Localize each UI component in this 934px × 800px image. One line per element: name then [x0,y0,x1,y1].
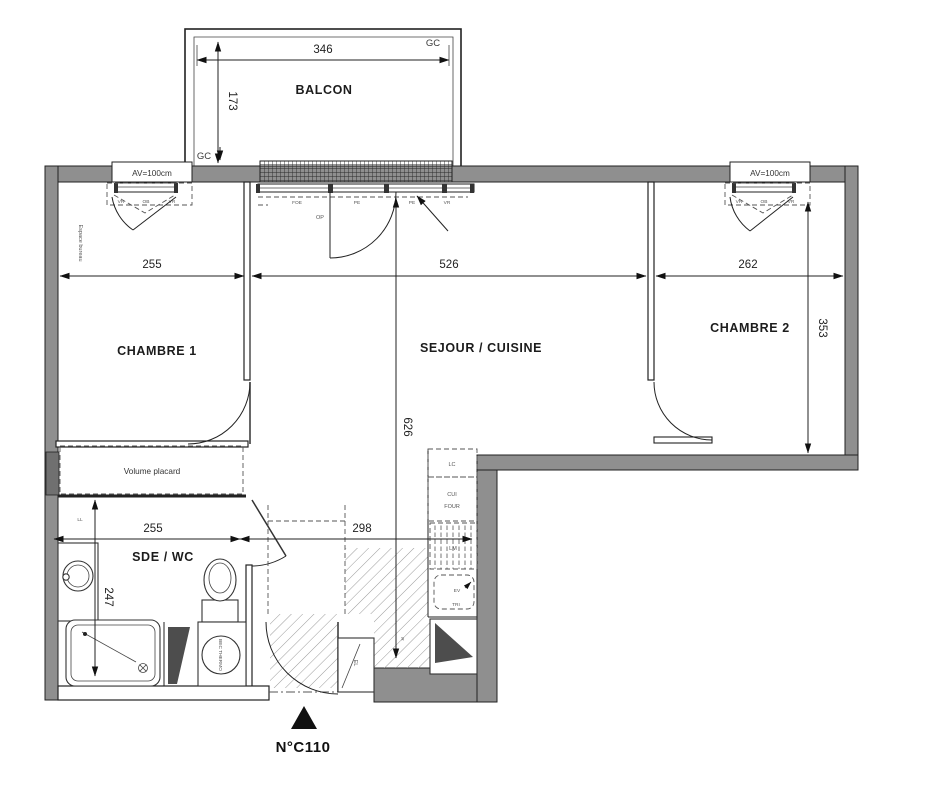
tag-bay-foe: FOE [292,200,302,206]
tag-bay-pe1: PE [354,200,360,206]
op-label: OP [316,215,324,221]
dim-sde-depth: 247 [102,587,114,606]
tag-bay-pe2: PE [409,200,415,206]
entry-right-wall [477,470,497,702]
tag-window-right-vr1: VR [736,199,743,205]
espace-bureau-label: Espace bureau [77,225,83,262]
tag-window-left-ob: OB [143,199,150,205]
wall-sde-bottom [58,686,269,700]
dim-sejour-depth: 626 [401,417,413,436]
room-label-sejour: SEJOUR / CUISINE [420,341,542,355]
kitchen-ev-label: EV [454,588,461,594]
dim-balcon-width: 346 [313,44,332,56]
dim-chambre2-depth: 353 [816,318,828,337]
dim-entry-width: 298 [352,523,371,535]
shower [66,620,160,686]
kitchen-lc-label: LC [448,462,455,468]
duct-block [46,452,59,495]
dim-sde-width: 255 [143,523,162,535]
room-label-sde: SDE / WC [132,550,194,564]
washbasin [58,543,98,621]
room-label-chambre1: CHAMBRE 1 [117,344,197,358]
wall-sde-right [246,565,252,688]
gc-bottom-label: GC [197,151,211,162]
dim-balcon-depth: 173 [226,91,238,110]
dim-chambre1-width: 255 [142,259,161,271]
room-label-balcon: BALCON [295,83,352,97]
ll-label: LL [77,517,83,523]
floor-plan-canvas: 346 173 BALCON GC GC AV=100cm VR OB VR [0,0,934,800]
dim-chambre2-width: 262 [738,259,757,271]
tag-bay-vr: VR [444,200,451,206]
room-label-chambre2: CHAMBRE 2 [710,321,790,335]
volume-placard-label: Volume placard [124,467,181,476]
tag-window-right-ob: OB [761,199,768,205]
gc-top-label: GC [426,38,440,49]
kitchen-four-label: FOUR [444,504,460,510]
tag-window-left-vr1: VR [118,199,125,205]
kitchen-cui-label: CUI [447,492,457,498]
el-label: EL [352,660,358,667]
wall-sejour-ch2 [648,182,654,380]
dim-sejour-width: 526 [439,259,458,271]
r-label: R [399,637,405,641]
av-left-label: AV=100cm [132,169,172,178]
av-right-label: AV=100cm [750,169,790,178]
bottom-right-wall [477,455,858,470]
toilet [202,559,238,622]
kitchen-lm-label: LM [449,546,457,552]
wall-ch1-sejour [244,182,250,380]
right-wall [845,166,858,470]
left-wall [45,166,58,700]
floor-plan-drawing: 346 173 BALCON GC GC AV=100cm VR OB VR [0,0,934,800]
kitchen-tri-label: TRI [452,602,460,608]
bec-thermo-label: BEC THERMO [217,639,223,671]
unit-number-label: N°C110 [276,739,331,756]
water-heater: BEC THERMO [198,622,246,686]
balcony-grating [260,161,452,182]
balcony: 346 173 BALCON GC GC [185,29,461,167]
